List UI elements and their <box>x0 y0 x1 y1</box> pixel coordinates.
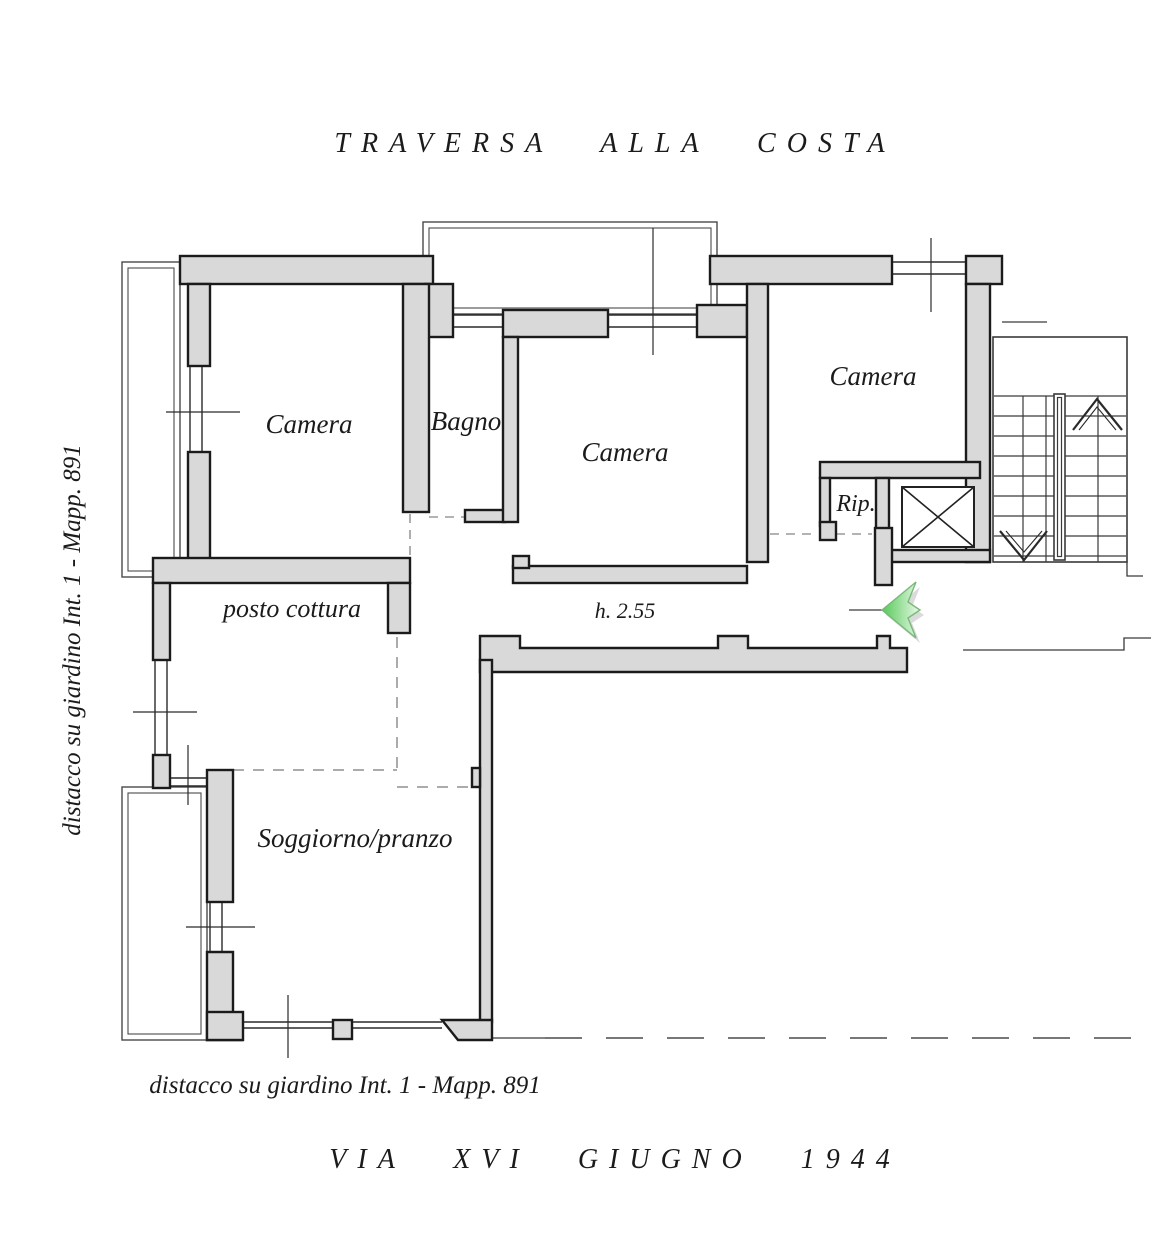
landing-outline <box>963 638 1151 650</box>
floor-plan-page: TRAVERSA ALLA COSTA VIA XVI GIUGNO 1944 … <box>0 0 1151 1235</box>
street-name-top: TRAVERSA ALLA COSTA <box>334 128 895 159</box>
dashed-openings <box>233 514 1151 1038</box>
elevator-icon <box>902 487 974 547</box>
ceiling-height-note: h. 2.55 <box>595 598 656 623</box>
balcony-top-left <box>122 262 180 577</box>
margin-note-left: distacco su giardino Int. 1 - Mapp. 891 <box>59 444 86 835</box>
margin-note-bottom: distacco su giardino Int. 1 - Mapp. 891 <box>149 1072 540 1099</box>
staircase <box>993 322 1143 576</box>
balcony-top-center <box>423 222 717 314</box>
room-label-soggiorno: Soggiorno/pranzo <box>257 823 452 853</box>
windows <box>133 228 966 1058</box>
floor-plan-svg: TRAVERSA ALLA COSTA VIA XVI GIUGNO 1944 … <box>0 0 1151 1235</box>
room-label-bagno: Bagno <box>431 406 502 436</box>
room-label-camera-ne: Camera <box>830 361 917 391</box>
room-label-rip: Rip. <box>835 491 875 517</box>
room-label-posto-cottura: posto cottura <box>221 594 361 623</box>
room-label-camera-center: Camera <box>582 437 669 467</box>
stair-stringer <box>1054 394 1065 560</box>
street-name-bottom: VIA XVI GIUGNO 1944 <box>329 1144 900 1175</box>
room-label-camera-nw: Camera <box>266 409 353 439</box>
entrance-arrow-icon <box>849 582 924 643</box>
balcony-bottom-left <box>122 787 207 1040</box>
